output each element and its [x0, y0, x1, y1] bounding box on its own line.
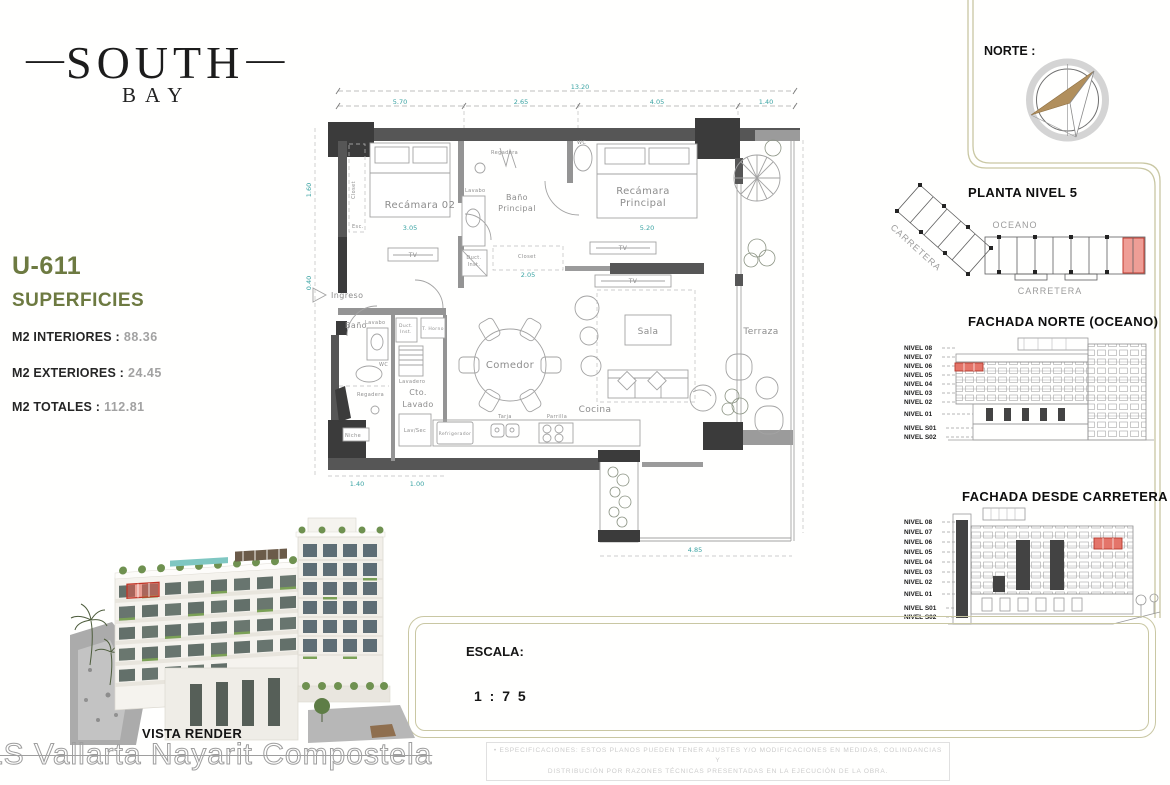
svg-text:Regadera: Regadera — [491, 150, 518, 156]
fachada-norte-title: FACHADA NORTE (OCEANO) — [968, 314, 1158, 329]
svg-text:Baño: Baño — [345, 321, 367, 330]
svg-text:NIVEL 06: NIVEL 06 — [904, 363, 932, 370]
svg-text:WC: WC — [379, 362, 388, 368]
room-sala: Sala — [575, 290, 716, 411]
svg-text:5.70: 5.70 — [393, 98, 407, 106]
keyplan-bar — [985, 235, 1145, 280]
fachada-norte-drawing: NIVEL 08 NIVEL 07 NIVEL 06 NIVEL 05 NIVE… — [898, 330, 1160, 460]
svg-text:4.85: 4.85 — [688, 546, 702, 554]
render-right-facade — [296, 518, 385, 687]
svg-text:Terraza: Terraza — [742, 327, 778, 337]
svg-text:NIVEL 02: NIVEL 02 — [904, 399, 932, 406]
svg-text:NIVEL 08: NIVEL 08 — [904, 345, 932, 352]
svg-text:Recámara 02: Recámara 02 — [385, 199, 456, 211]
svg-text:Comedor: Comedor — [486, 360, 535, 371]
svg-text:NIVEL 02: NIVEL 02 — [904, 579, 932, 586]
svg-text:1.60: 1.60 — [305, 183, 313, 197]
svg-text:Ingreso: Ingreso — [331, 291, 363, 300]
svg-text:NIVEL 06: NIVEL 06 — [904, 539, 932, 546]
svg-text:NIVEL 01: NIVEL 01 — [904, 591, 932, 598]
svg-text:1.40: 1.40 — [759, 98, 773, 106]
svg-text:Cocina: Cocina — [579, 405, 612, 415]
svg-text:Recámara: Recámara — [616, 185, 670, 197]
svg-text:NIVEL 07: NIVEL 07 — [904, 529, 932, 536]
fachada-norte-building — [948, 338, 1154, 440]
svg-text:NIVEL S02: NIVEL S02 — [904, 434, 937, 441]
svg-text:Closet: Closet — [518, 254, 536, 260]
svg-text:Esc.: Esc. — [352, 224, 364, 230]
svg-text:NIVEL S01: NIVEL S01 — [904, 425, 937, 432]
disclaimer-line1: • ESPECIFICACIONES: ESTOS PLANOS PUEDEN … — [491, 746, 945, 767]
svg-text:13.20: 13.20 — [571, 83, 590, 91]
svg-text:Niche: Niche — [345, 433, 361, 439]
svg-text:NIVEL 05: NIVEL 05 — [904, 549, 932, 556]
unit-id: U-611 — [12, 252, 81, 281]
room-terraza: Terraza — [722, 140, 783, 434]
svg-text:Duct.: Duct. — [399, 323, 413, 329]
svg-text:Principal: Principal — [620, 198, 666, 209]
fachada-carretera-levels: NIVEL 08 NIVEL 07 NIVEL 06 NIVEL 05 NIVE… — [904, 519, 956, 621]
escala-panel: ESCALA: 1 : 7 5 — [408, 616, 1156, 738]
top-dimensions: 13.20 5.70 2.65 4.05 1.40 — [336, 83, 797, 109]
svg-text:Lavabo: Lavabo — [465, 188, 486, 194]
building-render — [70, 500, 415, 745]
metric-label: M2 INTERIORES : — [12, 330, 120, 344]
svg-text:Tarja: Tarja — [497, 414, 512, 420]
svg-text:1.40: 1.40 — [350, 480, 364, 488]
svg-text:Lavado: Lavado — [402, 400, 433, 409]
room-comedor: Comedor — [459, 317, 561, 413]
escala-label: ESCALA: — [466, 644, 524, 659]
svg-text:NIVEL 03: NIVEL 03 — [904, 390, 932, 397]
svg-text:Duct.: Duct. — [466, 255, 481, 261]
keyplan-drawing: OCEANO CARRETERA CARRETERA — [895, 182, 1165, 312]
disclaimer-line2: DISTRIBUCIÓN POR RAZONES TÉCNICAS PRESEN… — [491, 767, 945, 777]
svg-text:NIVEL 05: NIVEL 05 — [904, 372, 932, 379]
svg-text:4.05: 4.05 — [650, 98, 664, 106]
metric-value: 24.45 — [128, 366, 162, 380]
svg-text:0.40: 0.40 — [305, 276, 313, 290]
metric-value: 88.36 — [124, 330, 158, 344]
svg-text:TV: TV — [618, 245, 628, 252]
svg-text:2.05: 2.05 — [521, 271, 535, 279]
metric-totales: M2 TOTALES :112.81 — [12, 400, 145, 414]
fachada-norte-unit-highlight — [955, 363, 983, 371]
keyplan-oceano-label: OCEANO — [992, 220, 1037, 230]
svg-text:Lavabo: Lavabo — [365, 320, 386, 326]
metric-label: M2 TOTALES : — [12, 400, 100, 414]
keyplan-unit-highlight — [1123, 238, 1144, 273]
svg-text:Lav/Sec: Lav/Sec — [404, 428, 426, 434]
svg-text:NIVEL 08: NIVEL 08 — [904, 519, 932, 526]
svg-text:1.00: 1.00 — [410, 480, 424, 488]
metric-label: M2 EXTERIORES : — [12, 366, 124, 380]
svg-text:Regadera: Regadera — [357, 392, 384, 398]
fachada-carretera-drawing: NIVEL 08 NIVEL 07 NIVEL 06 NIVEL 05 NIVE… — [898, 500, 1160, 635]
fachada-carretera-building — [948, 508, 1160, 624]
trees — [1136, 594, 1158, 618]
metric-value: 112.81 — [104, 400, 145, 414]
svg-text:Refrigerador: Refrigerador — [439, 431, 472, 437]
svg-text:NIVEL 04: NIVEL 04 — [904, 559, 932, 566]
svg-text:NIVEL 03: NIVEL 03 — [904, 569, 932, 576]
svg-text:TV: TV — [628, 278, 638, 285]
logo-dash-left: — — [26, 37, 64, 81]
svg-text:2.65: 2.65 — [514, 98, 528, 106]
logo-dash-right: — — [246, 37, 284, 81]
superficies-title: SUPERFICIES — [12, 290, 144, 312]
fachada-carretera-unit-highlight — [1094, 538, 1122, 549]
svg-text:Principal: Principal — [498, 204, 536, 213]
svg-text:3.05: 3.05 — [403, 224, 417, 232]
svg-text:Closet: Closet — [351, 181, 357, 199]
svg-text:Parrilla: Parrilla — [547, 414, 567, 420]
svg-text:WC: WC — [577, 140, 586, 146]
svg-text:NIVEL 01: NIVEL 01 — [904, 411, 932, 418]
svg-text:Sala: Sala — [638, 327, 659, 337]
watermark-text: LS Vallarta Nayarit Compostela — [0, 738, 432, 772]
svg-text:NIVEL 04: NIVEL 04 — [904, 381, 932, 388]
disclaimer-box: • ESPECIFICACIONES: ESTOS PLANOS PUEDEN … — [486, 742, 950, 781]
svg-text:Lavadero: Lavadero — [399, 379, 425, 385]
planter — [598, 450, 640, 542]
svg-text:T. Horno: T. Horno — [421, 326, 444, 332]
escala-panel-inner: ESCALA: 1 : 7 5 — [415, 623, 1149, 731]
svg-text:5.20: 5.20 — [640, 224, 654, 232]
compass-icon — [1020, 52, 1115, 147]
escala-value: 1 : 7 5 — [474, 688, 528, 704]
room-recamara-02: Closet Esc. Recámara 02 TV 3.05 — [349, 143, 455, 308]
svg-text:TV: TV — [408, 252, 418, 259]
keyplan-carretera-label: CARRETERA — [1018, 286, 1083, 296]
plan-sheet: — SOUTH — BAY U-611 SUPERFICIES M2 INTER… — [0, 0, 1170, 785]
metric-exteriores: M2 EXTERIORES :24.45 — [12, 366, 162, 380]
brand-name: SOUTH — [66, 36, 244, 89]
brand-logo: — SOUTH — BAY — [26, 36, 246, 108]
metric-interiores: M2 INTERIORES :88.36 — [12, 330, 158, 344]
svg-text:Baño: Baño — [506, 193, 528, 202]
keyplan-carretera-diagonal: CARRETERA — [889, 222, 944, 273]
room-cocina: Refrigerador Tarja Parrilla Cocina — [433, 405, 640, 446]
svg-text:Inst.: Inst. — [400, 329, 412, 335]
svg-text:NIVEL S01: NIVEL S01 — [904, 605, 937, 612]
render-unit-highlight — [127, 582, 159, 598]
svg-text:Inst.: Inst. — [468, 262, 481, 268]
keyplan-wing: CARRETERA — [889, 183, 993, 276]
svg-text:Cto.: Cto. — [409, 388, 427, 397]
svg-text:NIVEL 07: NIVEL 07 — [904, 354, 932, 361]
